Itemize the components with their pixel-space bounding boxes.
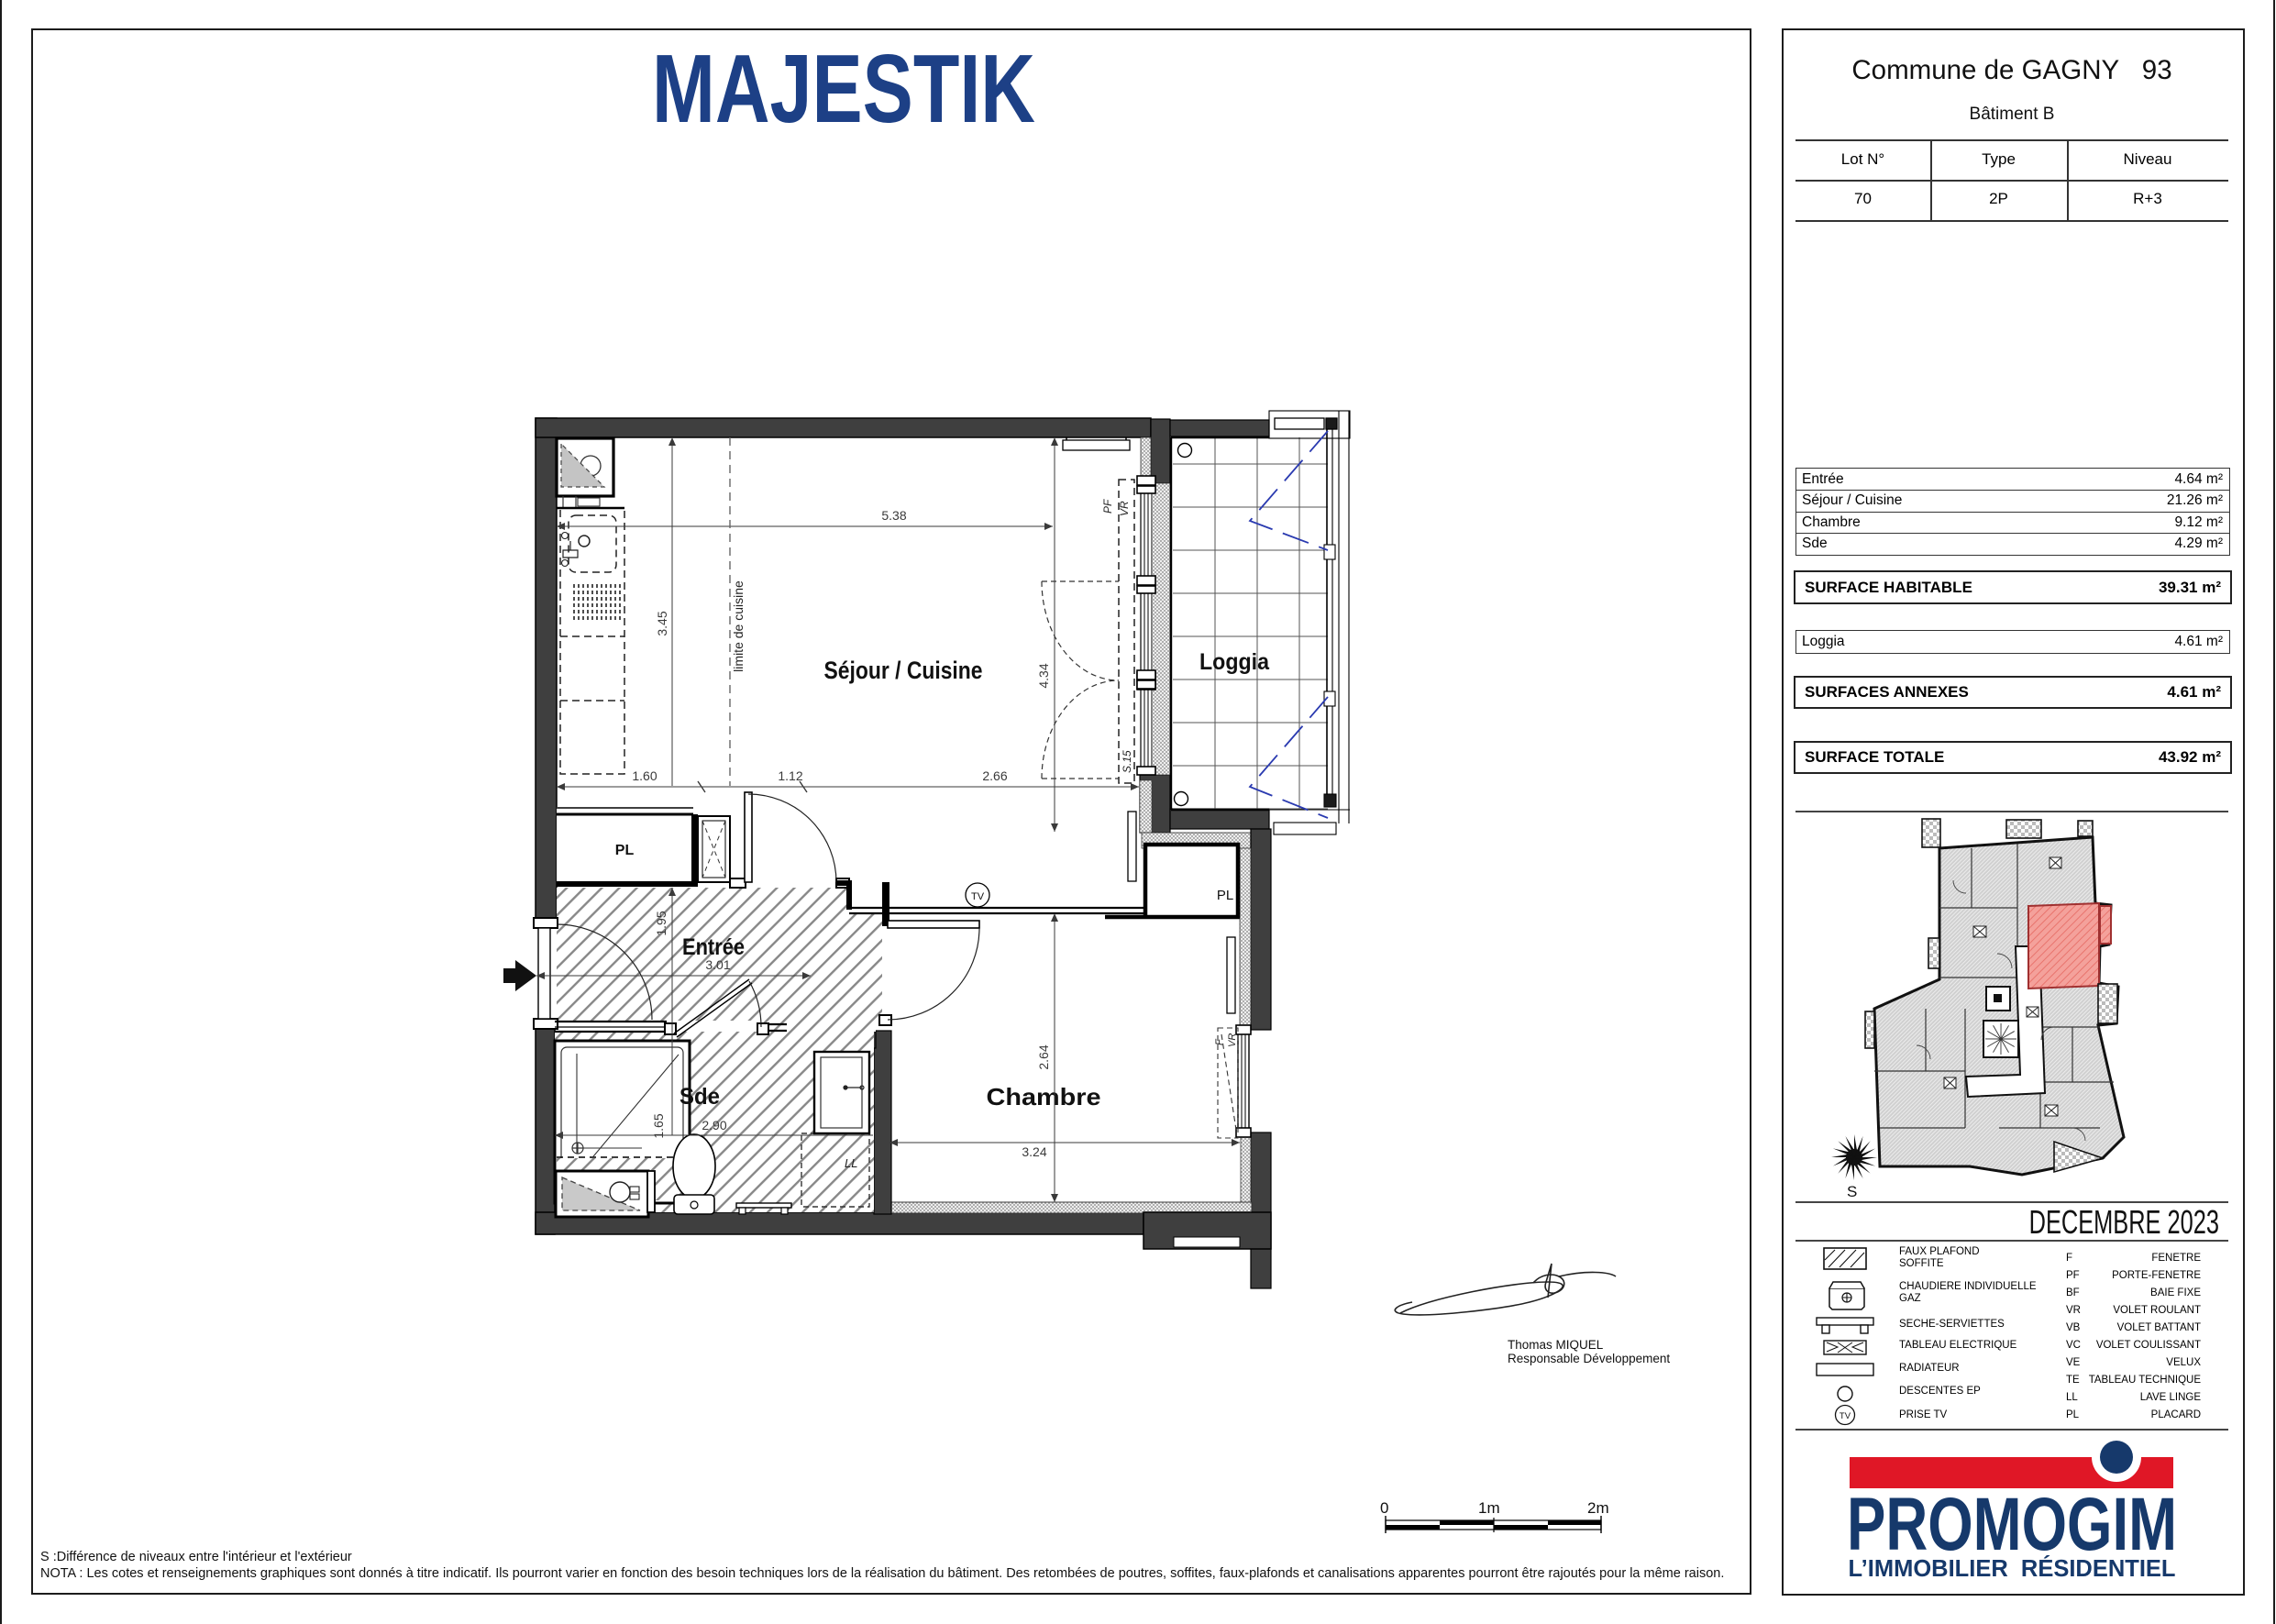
svg-text:VR: VR	[1227, 1033, 1238, 1047]
svg-text:S.15: S.15	[1121, 750, 1133, 773]
svg-text:F: F	[1214, 1038, 1225, 1045]
svg-text:1.12: 1.12	[778, 768, 802, 783]
svg-text:1.60: 1.60	[632, 768, 657, 783]
svg-text:LL: LL	[845, 1156, 857, 1170]
svg-text:5.38: 5.38	[881, 508, 906, 523]
svg-text:Thomas MIQUEL: Thomas MIQUEL	[1508, 1338, 1604, 1352]
svg-text:2.66: 2.66	[982, 768, 1007, 783]
svg-text:2m: 2m	[1587, 1499, 1609, 1517]
svg-text:Responsable Développement: Responsable Développement	[1508, 1352, 1670, 1365]
svg-text:Entrée: Entrée	[682, 934, 745, 960]
svg-text:3.01: 3.01	[705, 957, 730, 972]
svg-text:TV: TV	[971, 891, 985, 902]
svg-text:PL: PL	[1217, 888, 1233, 903]
svg-text:3.24: 3.24	[1022, 1144, 1046, 1159]
svg-text:2.90: 2.90	[702, 1118, 726, 1132]
svg-text:Séjour / Cuisine: Séjour / Cuisine	[824, 657, 983, 684]
svg-text:2.64: 2.64	[1036, 1044, 1051, 1069]
svg-text:1m: 1m	[1478, 1499, 1500, 1517]
svg-text:0: 0	[1380, 1499, 1388, 1517]
svg-text:4.34: 4.34	[1036, 663, 1051, 688]
svg-text:Loggia: Loggia	[1199, 649, 1270, 675]
svg-text:3.45: 3.45	[655, 611, 669, 635]
svg-text:1.95: 1.95	[654, 911, 668, 935]
svg-text:VR: VR	[1118, 501, 1131, 516]
svg-text:limite de cuisine: limite de cuisine	[731, 580, 746, 672]
svg-text:Chambre: Chambre	[987, 1083, 1101, 1110]
svg-text:PF: PF	[1101, 499, 1114, 514]
svg-text:Sde: Sde	[679, 1084, 720, 1110]
svg-text:PL: PL	[615, 843, 635, 858]
